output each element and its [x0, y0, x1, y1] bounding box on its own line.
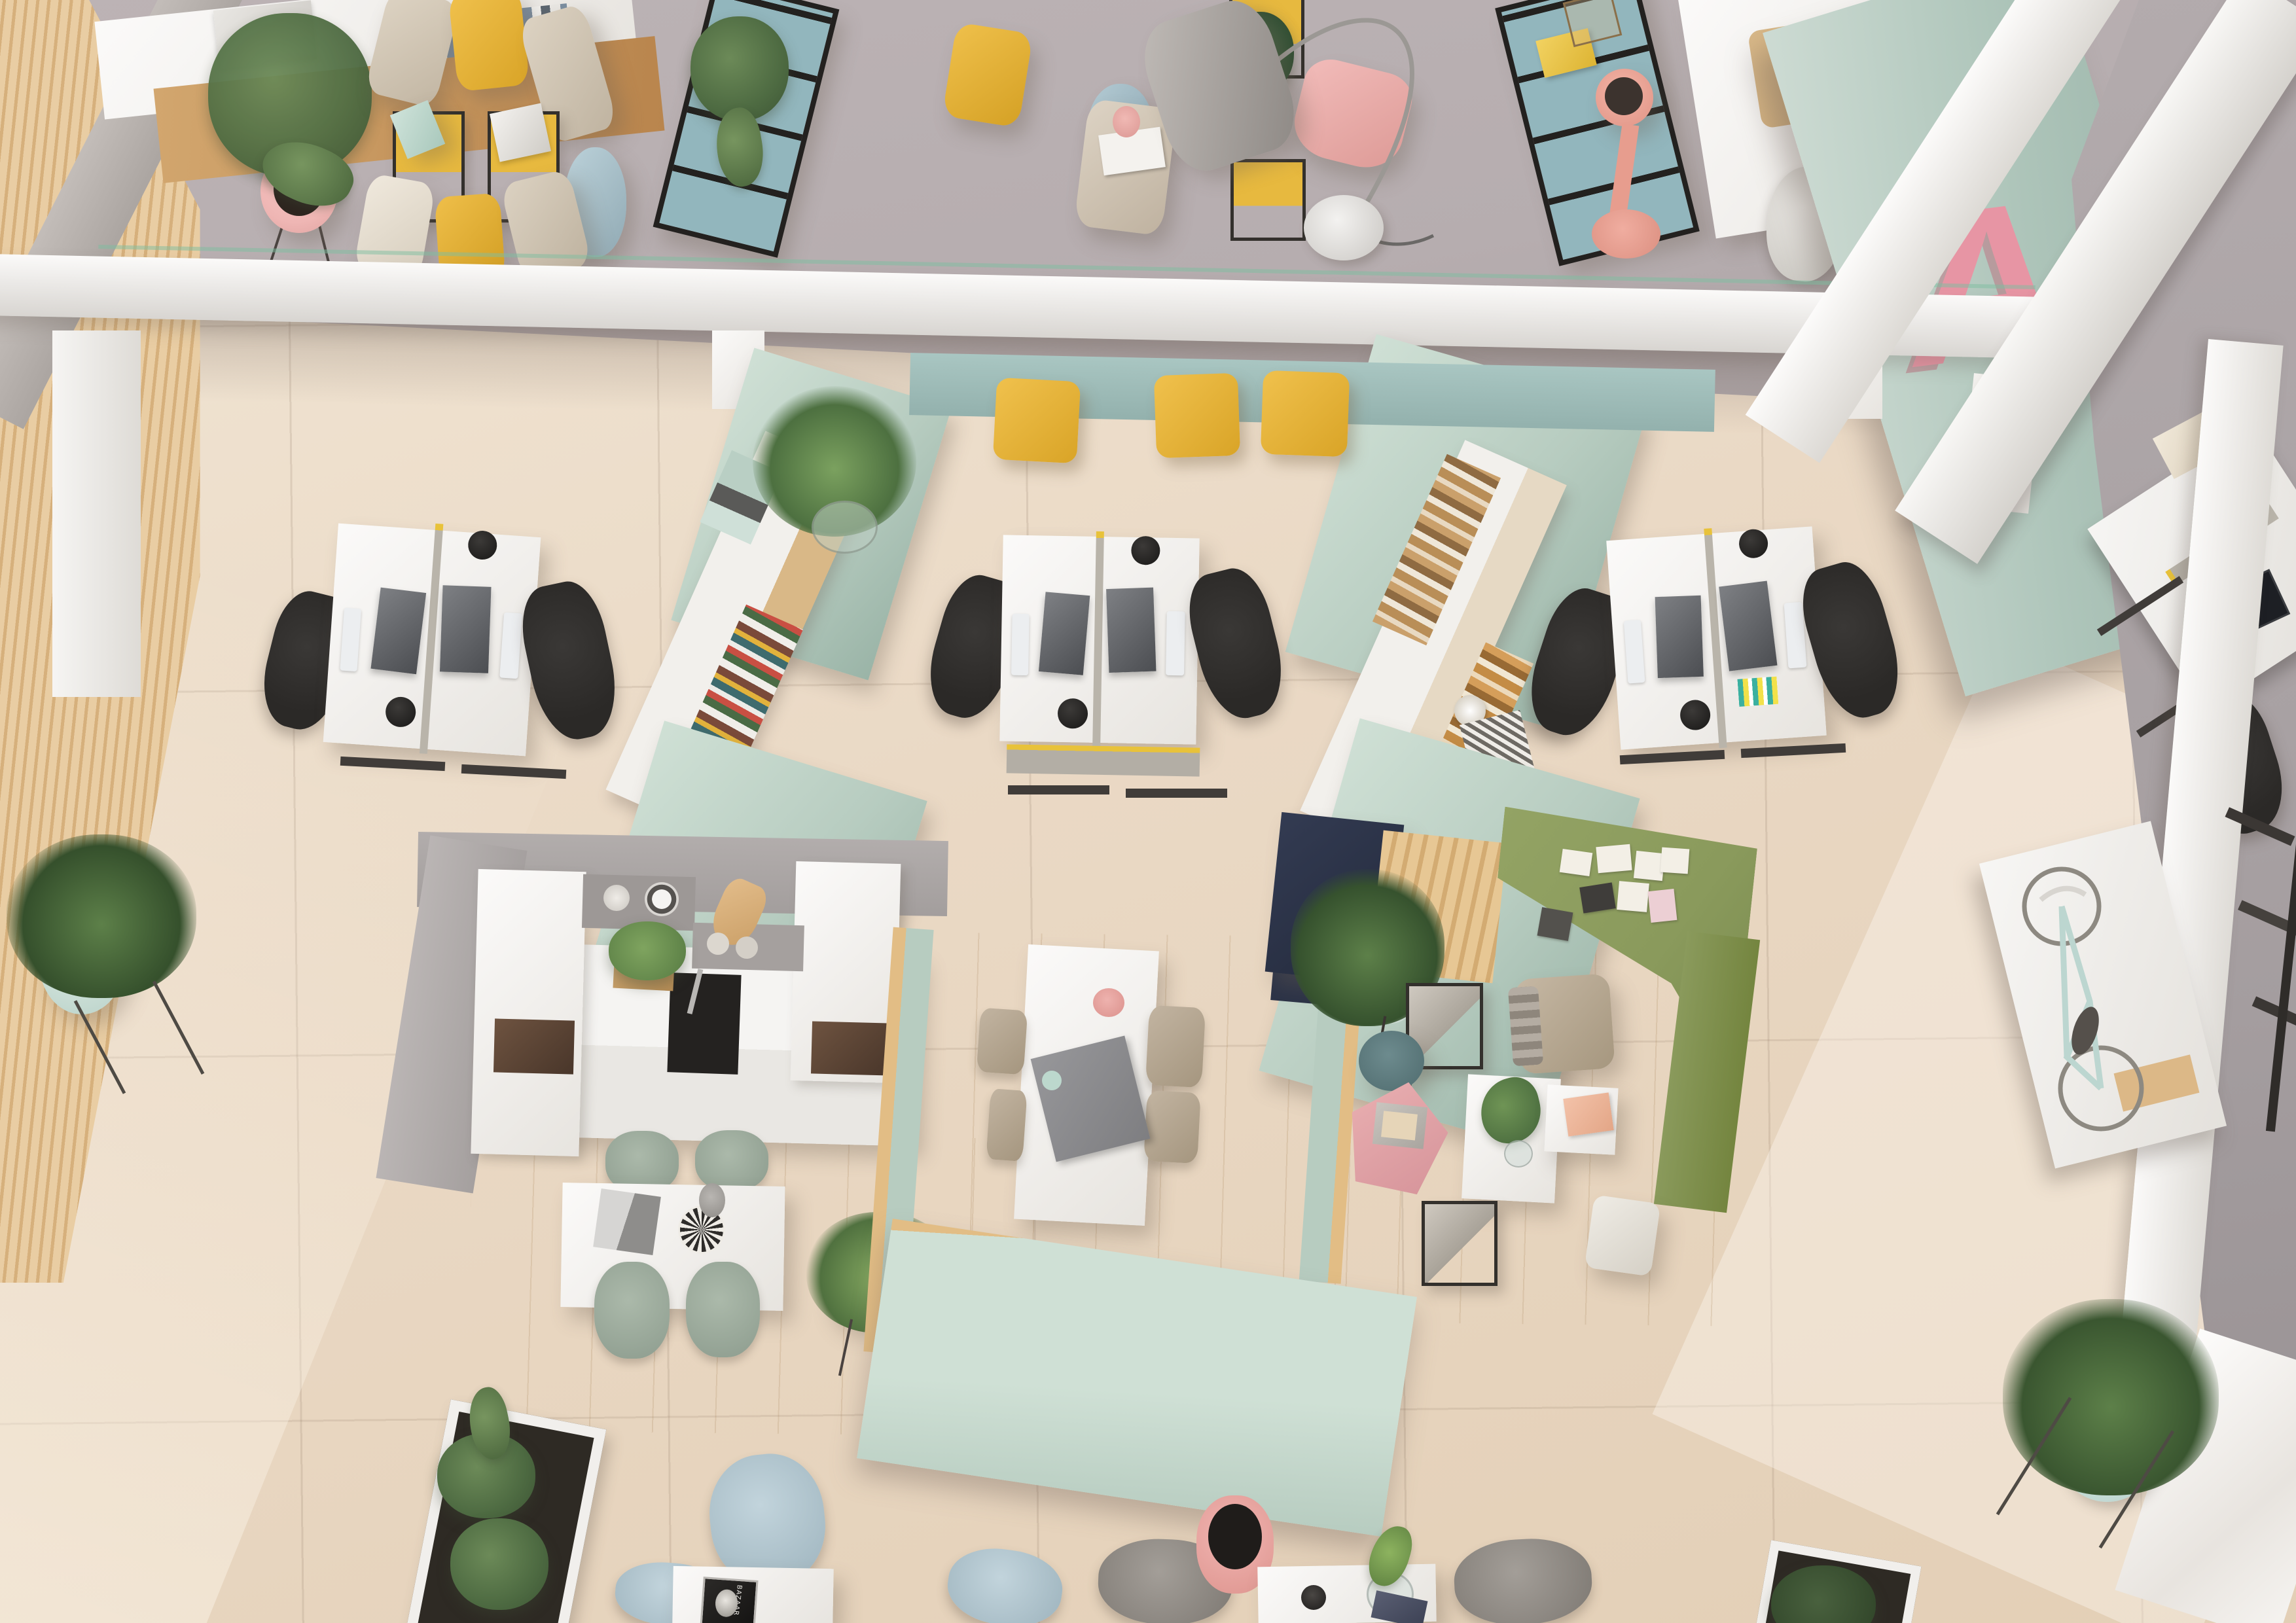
pod1-leg-2	[461, 764, 567, 779]
kitchen-bowl	[603, 885, 630, 911]
pod1-chair-right	[513, 576, 626, 747]
pinned-note-1	[1560, 849, 1593, 876]
pod-stool-4	[1143, 1090, 1201, 1164]
bicycle	[2001, 841, 2172, 1168]
pod1-monitor-right	[440, 585, 492, 673]
trough-left-plant-2	[450, 1518, 548, 1610]
pod1-task-lamp-1	[385, 696, 417, 728]
pinned-note-7	[1660, 847, 1690, 874]
lounge-teal-pouf	[1359, 1031, 1424, 1091]
lounge-white-cube	[1585, 1194, 1661, 1276]
arc-lamp-base	[1304, 195, 1384, 260]
dining-chair-2	[695, 1130, 768, 1191]
lounge-blanket	[1508, 986, 1543, 1067]
pink-stool-seat	[1605, 77, 1643, 115]
yellow-cube-3	[1261, 370, 1350, 457]
kitchen-oven-left	[493, 1018, 575, 1074]
pinned-note-4	[1579, 882, 1616, 913]
pouf-yellow-3	[942, 22, 1033, 128]
pod-stool-2	[1145, 1005, 1206, 1088]
pod2-leg-2	[1126, 789, 1227, 798]
pod3-task-lamp-1	[1679, 699, 1712, 731]
pod1-keyboard-left	[340, 608, 361, 672]
pod1-divider	[420, 524, 444, 754]
office-top-view-render: A	[0, 0, 2296, 1623]
kitchen-sink	[667, 972, 741, 1075]
yellow-cube-1	[993, 378, 1081, 464]
desk-pod-3	[1538, 517, 1911, 838]
pinned-note-5	[1617, 881, 1649, 912]
magazine-stand: BAZAAR	[700, 1577, 758, 1623]
pod2-task-lamp-2	[1131, 536, 1160, 565]
black-cup	[1301, 1585, 1326, 1610]
pod2-front-screens	[1007, 744, 1200, 776]
pod2-leg-1	[1008, 785, 1109, 794]
pod3-task-lamp-2	[1738, 528, 1769, 559]
yellow-cube-2	[1154, 373, 1240, 458]
kitchen-cups	[707, 933, 729, 955]
pod2-task-lamp-1	[1058, 698, 1088, 729]
pod2-divider	[1092, 531, 1104, 747]
divider-a-glass-vase	[812, 501, 878, 554]
pod1-leg-1	[340, 757, 446, 771]
kitchen-tall-cabinet-left	[471, 869, 586, 1156]
gray-jug	[699, 1183, 725, 1217]
blue-pot-plant	[2003, 1299, 2219, 1495]
desk-pod-2	[929, 514, 1309, 841]
pod-pencil-cup	[1042, 1071, 1062, 1090]
tray-book	[1381, 1111, 1418, 1140]
kitchen-oven-right	[811, 1021, 891, 1075]
pod3-leg-2	[1741, 743, 1846, 758]
column-left	[52, 330, 141, 697]
kitchen-dish-stack	[645, 882, 679, 916]
pod3-monitor-right	[1719, 581, 1777, 671]
pod2-monitor-right	[1106, 588, 1156, 673]
lounge-side-table-2	[1422, 1201, 1498, 1286]
pouf-yellow-1	[448, 0, 529, 92]
pink-stool-bottom-seat	[1208, 1504, 1262, 1569]
pod1-keyboard-right	[499, 613, 522, 679]
pinned-photo-1	[1537, 907, 1573, 941]
pinned-note-2	[1596, 844, 1632, 873]
pod3-color-swatches	[1737, 677, 1778, 707]
peach-book	[1563, 1092, 1613, 1136]
pod3-leg-1	[1620, 750, 1725, 764]
pod-stool-1	[977, 1008, 1028, 1075]
pod3-keyboard-left	[1624, 620, 1645, 684]
dining-chair-3	[594, 1262, 670, 1359]
dining-chair-4	[686, 1262, 760, 1357]
pod2-keyboard-right	[1166, 611, 1185, 675]
pinned-note-6	[1648, 889, 1677, 923]
mint-pot-plant	[7, 834, 196, 998]
pink-stool-base	[1592, 209, 1660, 259]
pod3-desk	[1606, 526, 1827, 749]
pod1-monitor-left	[370, 588, 426, 675]
pod1-task-lamp-2	[467, 530, 498, 561]
monstera-glass-vase	[1504, 1140, 1533, 1168]
desk-pod-1	[268, 524, 635, 838]
pod1-desk	[323, 524, 541, 757]
pod2-keyboard-left	[1011, 614, 1030, 675]
pod2-monitor-left	[1039, 592, 1090, 675]
pod3-monitor-left	[1655, 596, 1704, 678]
herb-plant	[609, 921, 686, 980]
pod2-desk	[999, 535, 1199, 744]
pod-stool-3	[986, 1088, 1027, 1162]
teal-shelf-trailing-plant	[691, 16, 789, 121]
laptop	[593, 1188, 661, 1255]
pink-mug	[1113, 106, 1140, 137]
